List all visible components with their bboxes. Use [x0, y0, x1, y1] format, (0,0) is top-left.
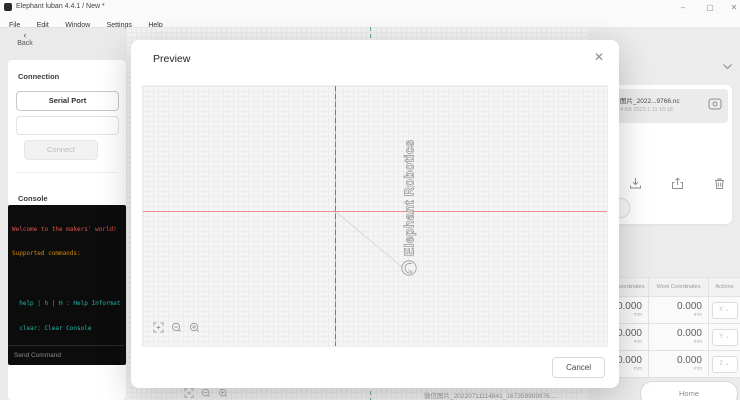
delete-icon[interactable] — [713, 177, 726, 190]
zoom-in-icon[interactable] — [218, 388, 228, 398]
app-window: Elephant luban 4.4.1 / New * – ▢ ✕ File … — [0, 0, 740, 400]
modal-title: Preview — [153, 53, 190, 65]
file-meta: 4 KB 2023.1.11 16:18 — [620, 107, 673, 113]
back-button[interactable]: ‹ Back — [10, 31, 40, 55]
file-card: 图片_2022...9766.nc 4 KB 2023.1.11 16:18 — [610, 85, 732, 224]
engraving-text: Elephant Robotics — [403, 139, 417, 256]
preview-zoom-controls — [153, 322, 200, 333]
export-icon[interactable] — [671, 177, 684, 190]
engraving-preview: Elephant Robotics — [383, 118, 435, 293]
preview-canvas[interactable]: Elephant Robotics — [142, 85, 608, 347]
port-select[interactable] — [16, 116, 119, 135]
minimize-button[interactable]: – — [677, 3, 689, 12]
menu-file[interactable]: File — [6, 22, 23, 29]
download-icon[interactable] — [629, 177, 642, 190]
maximize-button[interactable]: ▢ — [704, 3, 716, 12]
close-icon[interactable]: ✕ — [594, 50, 604, 64]
work-z-value: 0.000 — [649, 356, 708, 366]
send-command-input[interactable] — [8, 345, 124, 365]
axis-z-dropdown[interactable]: Z ⌄ — [712, 356, 738, 373]
title-bar: Elephant luban 4.4.1 / New * – ▢ ✕ — [0, 0, 740, 14]
preview-modal: Preview ✕ Elephant Robotics — [131, 40, 619, 388]
workspace-zoom-controls — [184, 388, 228, 398]
menu-bar: File Edit Window Settings Help — [0, 14, 740, 28]
zoom-in-icon[interactable] — [189, 322, 200, 333]
serial-port-button[interactable]: Serial Port — [16, 91, 119, 111]
connect-button[interactable]: Connect — [24, 140, 98, 160]
preview-eye-icon[interactable] — [708, 98, 722, 110]
axis-y-dropdown[interactable]: Y ⌄ — [712, 329, 738, 346]
console: Welcome to the makers' world! Supported … — [8, 205, 126, 365]
fit-view-icon[interactable] — [153, 322, 164, 333]
work-coordinates-header: Work Coordinates — [649, 278, 709, 297]
connection-title: Connection — [18, 72, 59, 81]
console-output: Welcome to the makers' world! Supported … — [12, 209, 124, 341]
console-line: Supported commands: — [12, 250, 124, 258]
zoom-out-icon[interactable] — [201, 388, 211, 398]
file-name: 图片_2022...9766.nc — [620, 95, 708, 105]
window-title: Elephant luban 4.4.1 / New * — [16, 3, 105, 10]
axis-x-dropdown[interactable]: X ⌄ — [712, 302, 738, 319]
console-line: clear: Clear Console — [12, 325, 124, 333]
cancel-button[interactable]: Cancel — [552, 357, 605, 378]
elephant-logo-icon — [402, 261, 416, 275]
console-line — [12, 275, 124, 283]
back-label: Back — [10, 40, 40, 47]
file-list-item[interactable]: 图片_2022...9766.nc 4 KB 2023.1.11 16:18 — [614, 89, 728, 123]
connection-panel: Connection Serial Port Connect Console W… — [8, 60, 126, 400]
home-button[interactable]: Home — [640, 381, 738, 400]
actions-header: Actions — [709, 278, 740, 297]
fit-view-icon[interactable] — [184, 388, 194, 398]
close-window-button[interactable]: ✕ — [728, 3, 740, 12]
app-logo-icon — [4, 3, 12, 11]
menu-window[interactable]: Window — [62, 22, 93, 29]
back-chevron-icon: ‹ — [10, 31, 40, 40]
work-x-unit: mm — [649, 312, 708, 318]
work-y-value: 0.000 — [649, 329, 708, 339]
console-title: Console — [18, 194, 48, 203]
console-line: help | h | H : Help Informat — [12, 300, 124, 308]
zoom-out-icon[interactable] — [171, 322, 182, 333]
work-y-unit: mm — [649, 339, 708, 345]
toolpath-line — [143, 86, 607, 346]
chevron-down-icon[interactable] — [722, 63, 733, 71]
work-z-unit: mm — [649, 366, 708, 372]
loaded-file-label: 微信图片_20220711114841_167359909976... — [424, 390, 555, 400]
menu-edit[interactable]: Edit — [34, 22, 52, 29]
console-line: Welcome to the makers' world! — [12, 226, 124, 234]
work-x-value: 0.000 — [649, 302, 708, 312]
divider — [16, 172, 117, 173]
